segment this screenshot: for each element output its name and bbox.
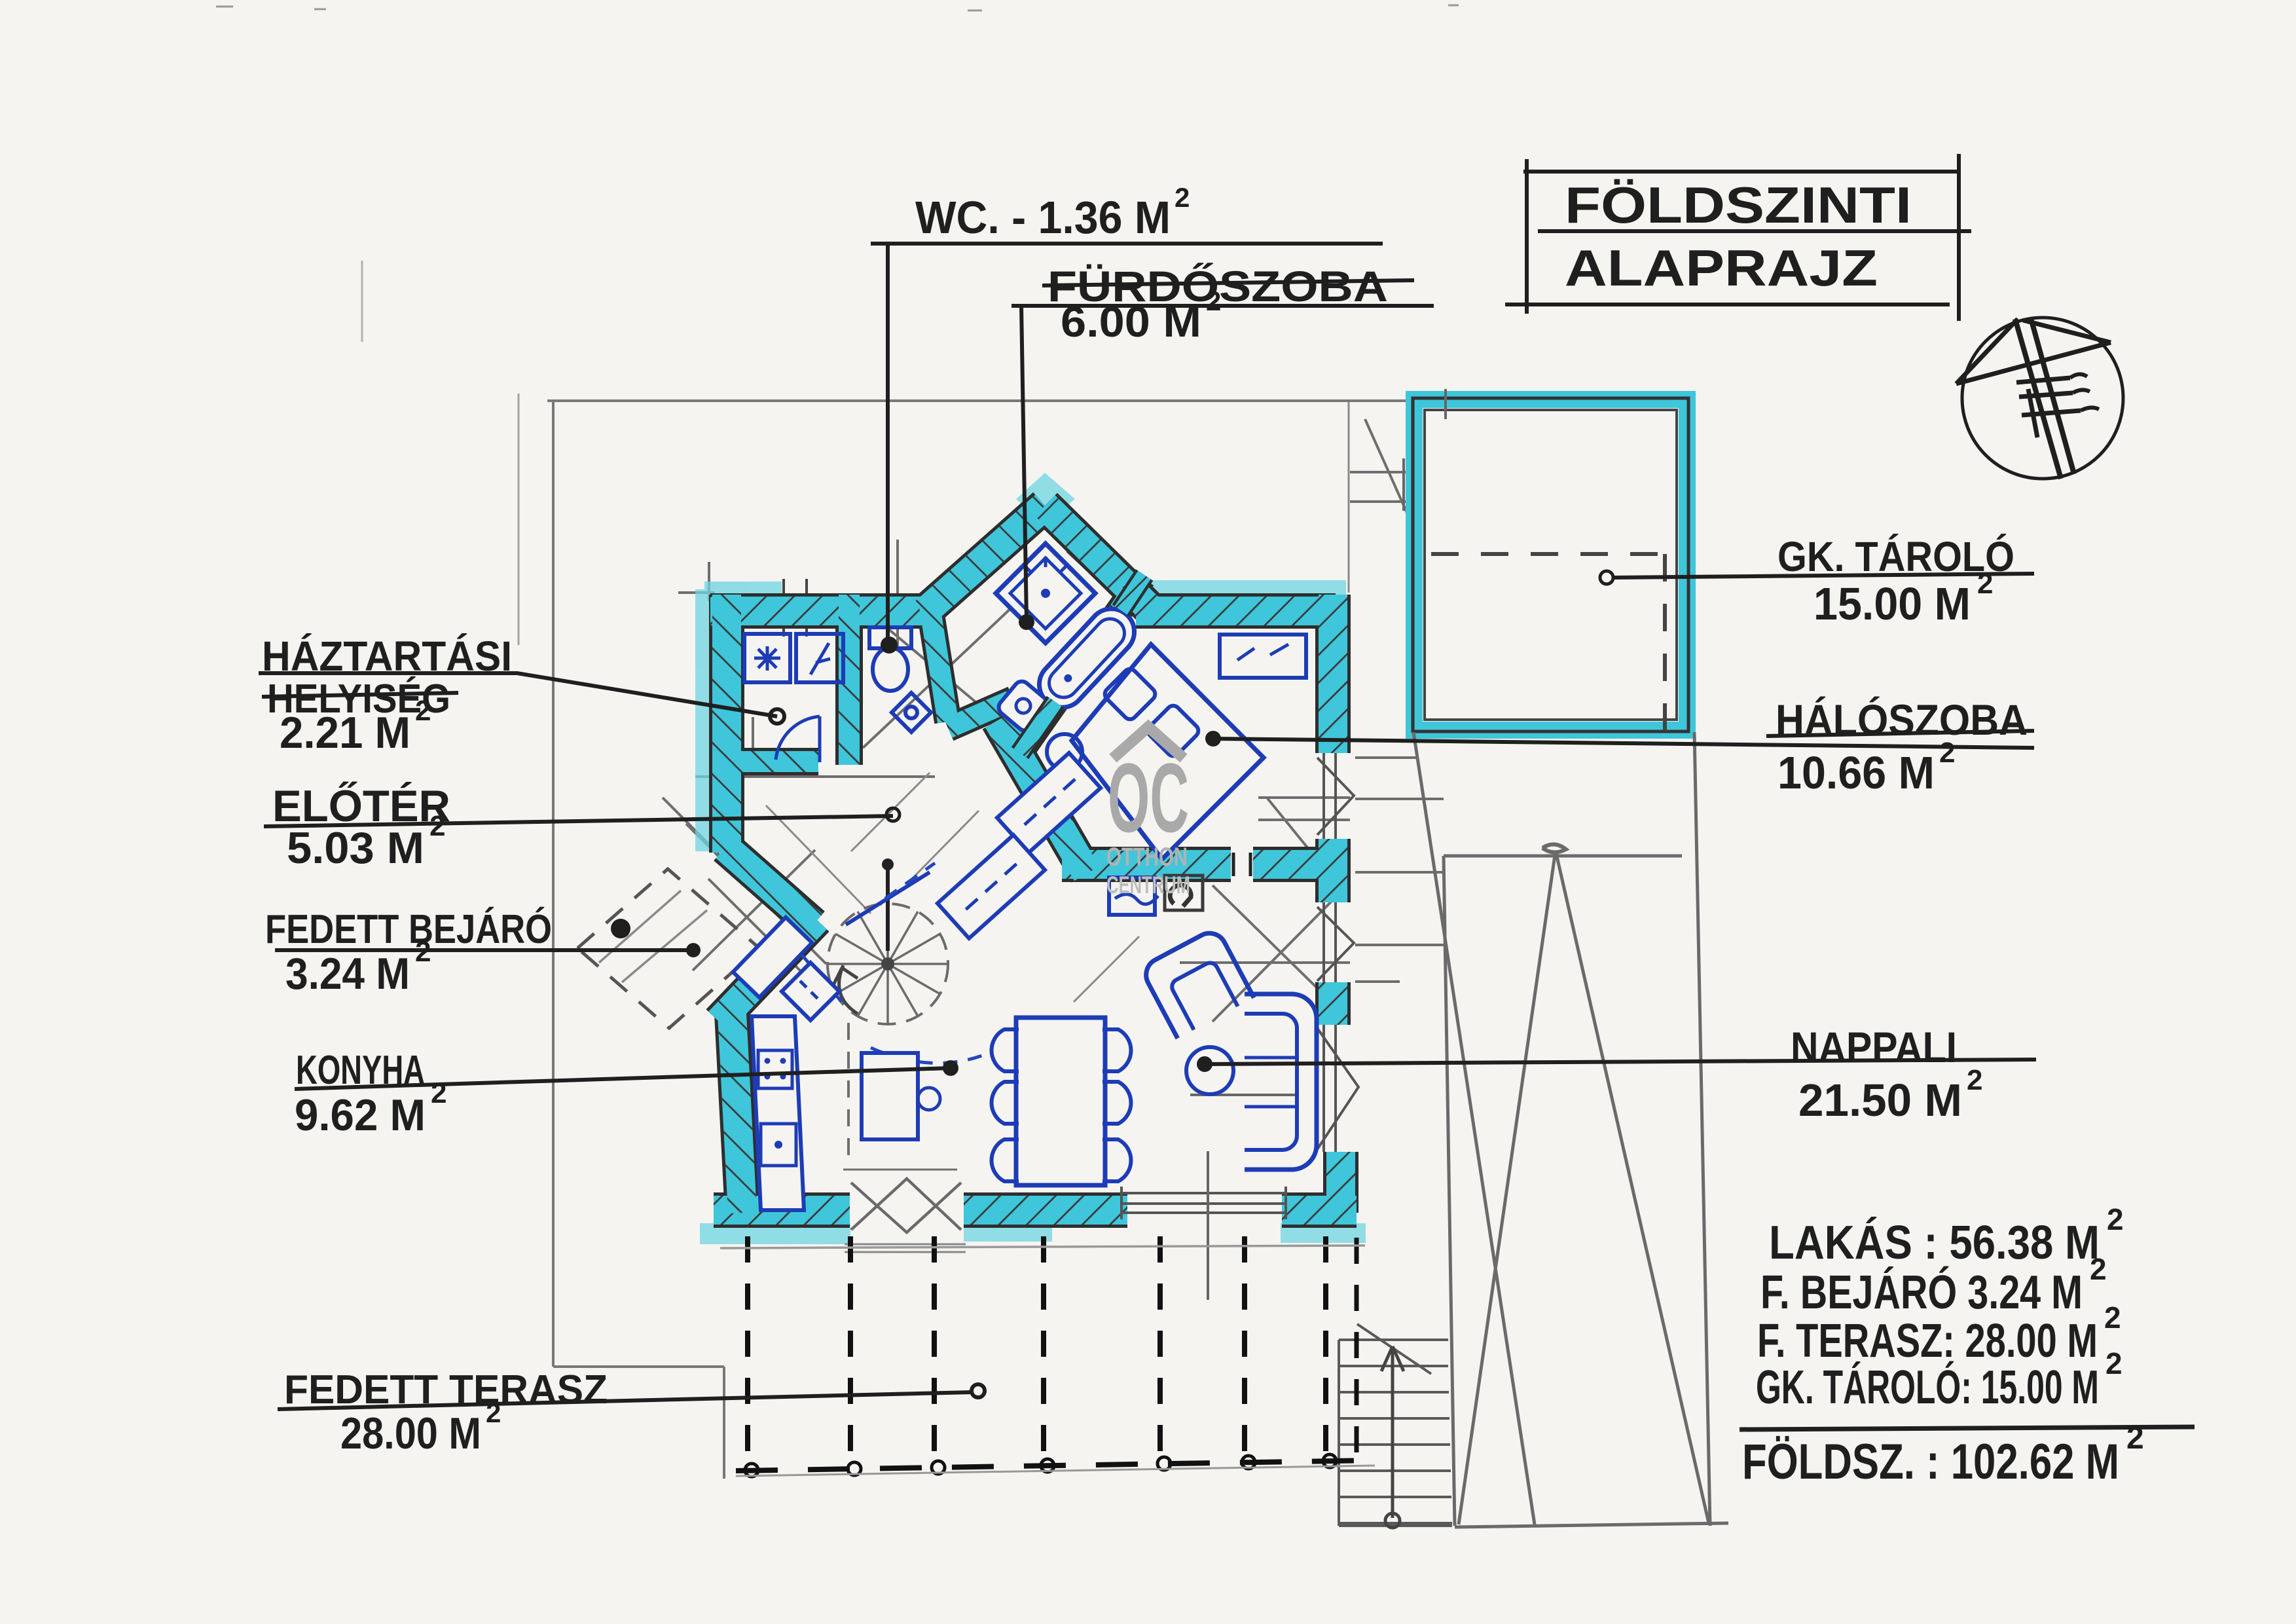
svg-text:OTTHON: OTTHON bbox=[1106, 843, 1188, 872]
svg-text:2.21 M: 2.21 M bbox=[280, 708, 410, 758]
svg-text:21.50 M: 21.50 M bbox=[1798, 1075, 1962, 1126]
svg-text:2: 2 bbox=[1977, 568, 1993, 600]
svg-text:GK. TÁROLÓ: 15.00 M: GK. TÁROLÓ: 15.00 M bbox=[1756, 1361, 2099, 1414]
svg-text:FEDETT BEJÁRÓ: FEDETT BEJÁRÓ bbox=[265, 907, 552, 952]
svg-text:F. TERASZ: 28.00 M: F. TERASZ: 28.00 M bbox=[1757, 1315, 2098, 1367]
svg-text:28.00 M: 28.00 M bbox=[340, 1409, 481, 1458]
svg-text:10.66 M: 10.66 M bbox=[1777, 747, 1935, 798]
svg-text:9.62 M: 9.62 M bbox=[295, 1090, 426, 1140]
svg-text:CENTRUM: CENTRUM bbox=[1106, 872, 1190, 898]
svg-text:FÖLDSZ. : 102.62 M: FÖLDSZ. : 102.62 M bbox=[1742, 1434, 2119, 1490]
svg-text:2: 2 bbox=[2090, 1252, 2107, 1286]
svg-text:ALAPRAJZ: ALAPRAJZ bbox=[1565, 239, 1878, 297]
svg-text:2: 2 bbox=[1967, 1064, 1982, 1096]
svg-text:F. BEJÁRÓ 3.24 M: F. BEJÁRÓ 3.24 M bbox=[1760, 1266, 2083, 1319]
svg-text:2: 2 bbox=[2104, 1301, 2121, 1335]
svg-text:2: 2 bbox=[486, 1397, 501, 1428]
svg-text:15.00 M: 15.00 M bbox=[1813, 578, 1971, 629]
svg-text:3.24 M: 3.24 M bbox=[285, 949, 410, 999]
svg-text:FÖLDSZINTI: FÖLDSZINTI bbox=[1565, 176, 1912, 234]
svg-text:5.03 M: 5.03 M bbox=[287, 823, 424, 873]
svg-text:NAPPALI: NAPPALI bbox=[1791, 1023, 1957, 1071]
svg-text:2: 2 bbox=[2107, 1202, 2124, 1236]
svg-text:LAKÁS : 56.38 M: LAKÁS : 56.38 M bbox=[1769, 1217, 2100, 1269]
svg-text:2: 2 bbox=[429, 810, 445, 842]
svg-text:2: 2 bbox=[1206, 286, 1221, 316]
svg-text:6.00 M: 6.00 M bbox=[1061, 297, 1201, 346]
svg-text:2: 2 bbox=[415, 695, 431, 727]
svg-text:2: 2 bbox=[1939, 737, 1955, 769]
svg-text:OC: OC bbox=[1108, 743, 1189, 853]
svg-text:2: 2 bbox=[1175, 182, 1190, 213]
svg-text:2: 2 bbox=[415, 936, 431, 968]
svg-text:2: 2 bbox=[431, 1077, 446, 1109]
svg-text:2: 2 bbox=[2105, 1346, 2123, 1380]
svg-text:2: 2 bbox=[2126, 1421, 2144, 1456]
svg-text:WC. - 1.36 M: WC. - 1.36 M bbox=[915, 192, 1171, 243]
